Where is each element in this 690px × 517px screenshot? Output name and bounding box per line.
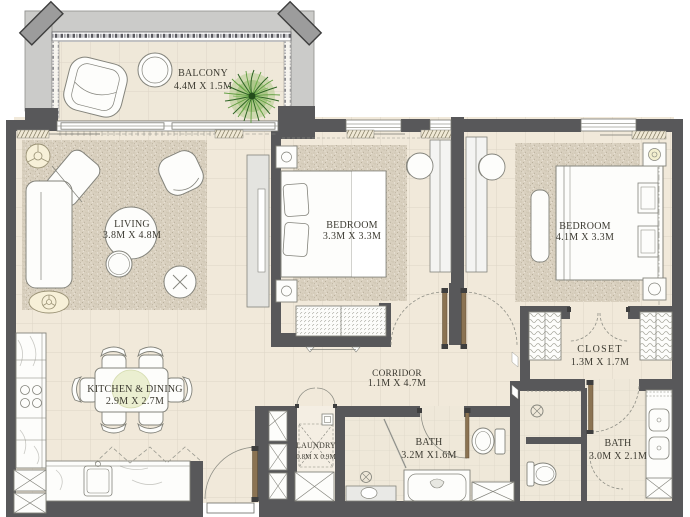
svg-text:CLOSET: CLOSET bbox=[577, 344, 623, 355]
svg-text:BEDROOM: BEDROOM bbox=[559, 221, 610, 232]
svg-text:1.1M X 4.7M: 1.1M X 4.7M bbox=[368, 378, 426, 389]
svg-text:3.8M X 4.8M: 3.8M X 4.8M bbox=[103, 230, 161, 241]
svg-text:LIVING: LIVING bbox=[114, 219, 150, 230]
svg-text:BATH: BATH bbox=[605, 438, 632, 449]
svg-text:4.1M X 3.3M: 4.1M X 3.3M bbox=[556, 232, 614, 243]
svg-text:2.9M X 2.7M: 2.9M X 2.7M bbox=[106, 396, 164, 407]
svg-text:4.4M X 1.5M: 4.4M X 1.5M bbox=[174, 81, 232, 92]
svg-text:3.2M X1.6M: 3.2M X1.6M bbox=[401, 450, 457, 461]
svg-text:1.3M X 1.7M: 1.3M X 1.7M bbox=[571, 357, 629, 368]
svg-text:LAUNDRY: LAUNDRY bbox=[296, 441, 336, 450]
svg-text:3.0M X 2.1M: 3.0M X 2.1M bbox=[589, 451, 647, 462]
svg-text:BEDROOM: BEDROOM bbox=[326, 220, 377, 231]
svg-text:KITCHEN & DINING: KITCHEN & DINING bbox=[87, 384, 182, 395]
svg-text:0.8M X 0.9M: 0.8M X 0.9M bbox=[296, 453, 336, 461]
svg-text:BALCONY: BALCONY bbox=[178, 68, 228, 79]
svg-text:3.3M X 3.3M: 3.3M X 3.3M bbox=[323, 231, 381, 242]
svg-text:BATH: BATH bbox=[416, 437, 443, 448]
